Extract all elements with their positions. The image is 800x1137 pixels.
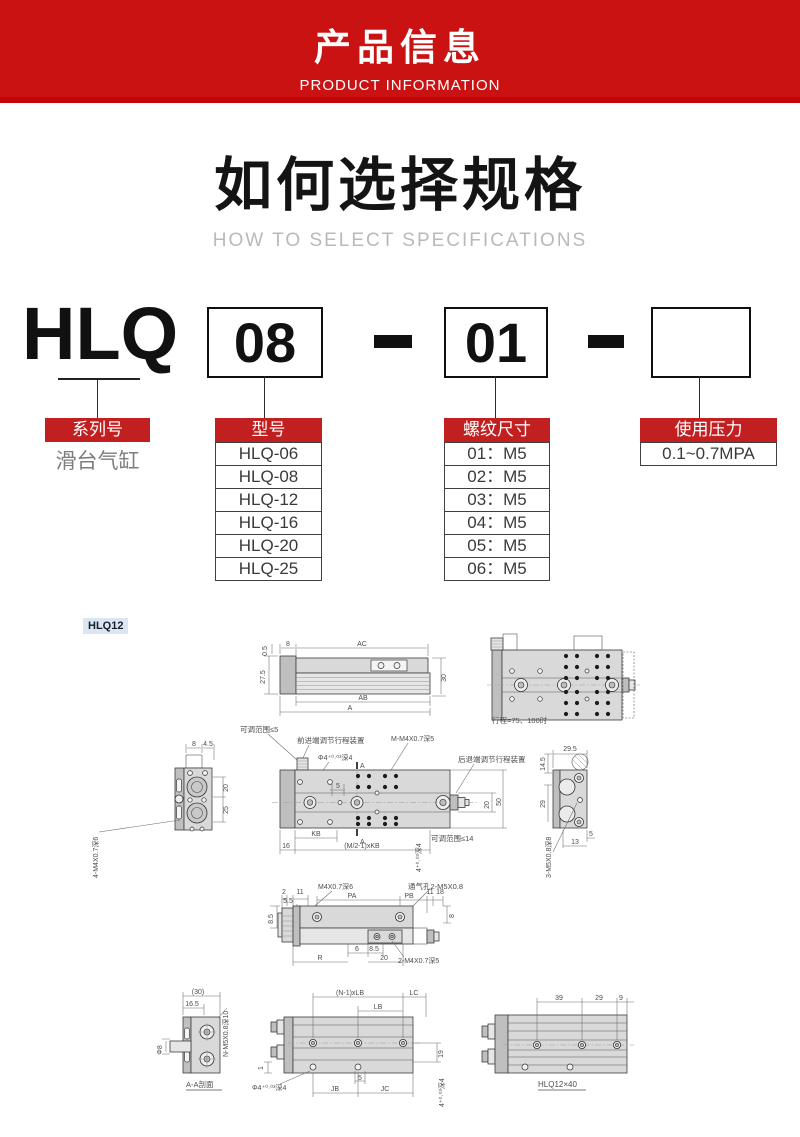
connector-line (264, 376, 265, 418)
view-label: HLQ12×40 (538, 1080, 577, 1089)
dim-label: 27.5 (260, 670, 267, 684)
separator-dash-1 (374, 335, 412, 348)
dim-label: 20 (484, 801, 491, 809)
drawing-model-chip: HLQ12 (83, 618, 128, 634)
dim-label: PB (404, 893, 414, 900)
dim-label: 29.5 (563, 746, 577, 753)
thread-spec-label: 4-M4X0.7深6 (91, 837, 100, 878)
model-cell: HLQ-16 (215, 511, 322, 535)
dim-label: 2 (282, 889, 286, 896)
view-stroke-variant: 39 29 9 HLQ12×40 (482, 995, 634, 1090)
adjust-range-note: 可调范围≤5 (240, 724, 278, 734)
connector-line (699, 376, 700, 418)
dim-label: 6 (355, 946, 359, 953)
dim-label: 18 (436, 889, 444, 896)
model-cell: HLQ-20 (215, 534, 322, 558)
view-side-center: 可调范围≤5 前进端调节行程装置 M-M4X0.7深5 Φ4⁺⁰·⁰³深4 后退… (240, 724, 526, 872)
banner-subtitle: PRODUCT INFORMATION (0, 77, 800, 94)
dim-label: 50 (496, 798, 503, 806)
dim-label: 29 (595, 995, 603, 1002)
connector-line (495, 376, 496, 418)
banner-title: 产品信息 (0, 17, 800, 71)
dim-label: 4.5 (203, 741, 213, 748)
thread-spec-label: 3-M5X0.8深8 (544, 837, 553, 878)
model-code-selector: HLQ 08 01 系列号 型号 螺纹尺寸 使用压力 滑台气缸 HLQ-06 H… (0, 290, 800, 610)
dim-label: AB (358, 695, 368, 702)
tolerance-label: 4⁺⁰·⁰³深4 (437, 1078, 446, 1107)
section-subtitle: HOW TO SELECT SPECIFICATIONS (0, 230, 800, 252)
back-device-label: 后退端调节行程装置 (458, 754, 526, 764)
view-label: A-A剖面 (186, 1079, 214, 1089)
thread-spec-label: M4X0.7深6 (318, 882, 353, 891)
connector-line (97, 380, 98, 418)
dim-label: KB (311, 831, 321, 838)
fwd-device-label: 前进端调节行程装置 (297, 735, 365, 745)
thread-cell: 04：M5 (444, 511, 550, 535)
hole-spec-label: Φ4⁺⁰·⁰³深4 (318, 753, 352, 762)
model-cell: HLQ-12 (215, 488, 322, 512)
dim-label: PA (348, 893, 357, 900)
thread-spec-label: N-M5X0.8深10 (221, 1011, 230, 1057)
view-plan-top: 行程=75、100时 (487, 634, 640, 725)
dim-label: LB (374, 1004, 383, 1011)
thread-code-box: 01 (444, 307, 548, 378)
dim-label: Φ8 (157, 1045, 164, 1055)
dim-label: 9 (619, 995, 623, 1002)
view-end-right: 29.5 14.5 29 5 13 3-M5X0.8深8 (540, 746, 595, 878)
drawing-note: 行程=75、100时 (492, 715, 548, 725)
series-code: HLQ (22, 292, 178, 376)
model-cell: HLQ-06 (215, 442, 322, 466)
section-title: 如何选择规格 (0, 138, 800, 222)
dim-label: (N-1)xLB (336, 990, 364, 997)
dim-label: 14.5 (540, 757, 547, 771)
dim-label: 5.5 (283, 898, 293, 905)
dim-label: JB (331, 1086, 340, 1093)
adjust-range-note: 可调范围≤14 (431, 833, 473, 843)
dim-label: 8 (286, 641, 290, 648)
technical-drawings-section: HLQ12 8 AC 0.5 27.5 30 AB A (0, 610, 800, 1137)
column-header-thread: 螺纹尺寸 (444, 418, 550, 442)
thread-cell: 03：M5 (444, 488, 550, 512)
dim-label: 39 (555, 995, 563, 1002)
thread-spec-label: 2-M4X0.7深5 (398, 956, 439, 965)
bore-code-box: 08 (207, 307, 323, 378)
dim-label: 5 (336, 783, 340, 790)
dim-label: 20 (380, 955, 388, 962)
view-plan-bottom: (N-1)xLB LC LB 19 1 Φ4⁺⁰·⁰³深4 5 JB JC 4⁺… (252, 990, 446, 1107)
howto-section: 如何选择规格 HOW TO SELECT SPECIFICATIONS (0, 138, 800, 252)
thread-cell: 01：M5 (444, 442, 550, 466)
dim-label: 8 (192, 741, 196, 748)
thread-cell: 05：M5 (444, 534, 550, 558)
series-underline (58, 378, 140, 380)
dim-label: 1 (258, 1066, 265, 1070)
view-side-bottom: 2 11 5.5 M4X0.7深6 通气孔2-M5X0.8 PA PB 11 1… (268, 881, 463, 966)
hole-spec-label: Φ4⁺⁰·⁰³深4 (252, 1083, 286, 1092)
dim-label: 16.5 (185, 1001, 199, 1008)
dim-label: 13 (571, 839, 579, 846)
dim-label: 0.5 (262, 646, 269, 656)
dim-label: A (348, 705, 353, 712)
dim-label: 16 (282, 843, 290, 850)
column-header-series: 系列号 (45, 418, 150, 442)
view-section-aa: (30) 16.5 Φ8 N-M5X0.8深10 A-A剖面 (157, 989, 230, 1090)
dim-label: 29 (540, 800, 547, 808)
dim-label: 5 (589, 831, 593, 838)
dim-label: 19 (438, 1050, 445, 1058)
banner: 产品信息 PRODUCT INFORMATION (0, 0, 800, 103)
dim-label: (M/2-1)xKB (344, 843, 380, 850)
dim-label: 25 (223, 806, 230, 814)
dim-label: LC (410, 990, 419, 997)
model-cell: HLQ-08 (215, 465, 322, 489)
dim-label: R (317, 955, 322, 962)
thread-cell: 06：M5 (444, 557, 550, 581)
tolerance-label: 4⁺⁰·⁰³深4 (414, 843, 423, 872)
pressure-code-box (651, 307, 751, 378)
dim-label: 20 (223, 784, 230, 792)
pressure-cell: 0.1~0.7MPA (640, 442, 777, 466)
dim-label: 11 (296, 889, 303, 896)
thread-cell: 02：M5 (444, 465, 550, 489)
column-header-model: 型号 (215, 418, 322, 442)
dim-label: 30 (441, 674, 448, 682)
section-mark: A (360, 763, 365, 770)
series-value: 滑台气缸 (45, 445, 150, 475)
column-header-pressure: 使用压力 (640, 418, 777, 442)
view-end-left: 8 4.5 20 25 4-M4X0.7深6 (91, 741, 230, 878)
dim-label: (30) (192, 989, 204, 996)
dim-label: 11 (426, 889, 433, 896)
dim-label: 8.5 (268, 914, 275, 924)
separator-dash-2 (588, 335, 624, 348)
dim-label: JC (381, 1086, 390, 1093)
model-cell: HLQ-25 (215, 557, 322, 581)
dim-label: 8.5 (369, 946, 379, 953)
dim-label: 8 (449, 914, 456, 918)
dim-label: AC (357, 641, 367, 648)
product-info-page: 产品信息 PRODUCT INFORMATION 如何选择规格 HOW TO S… (0, 0, 800, 1137)
thread-spec-label: M-M4X0.7深5 (391, 734, 434, 743)
dim-label: 5 (358, 1075, 362, 1082)
view-side-top: 8 AC 0.5 27.5 30 AB A (260, 641, 448, 716)
technical-drawings: 8 AC 0.5 27.5 30 AB A (0, 610, 800, 1137)
